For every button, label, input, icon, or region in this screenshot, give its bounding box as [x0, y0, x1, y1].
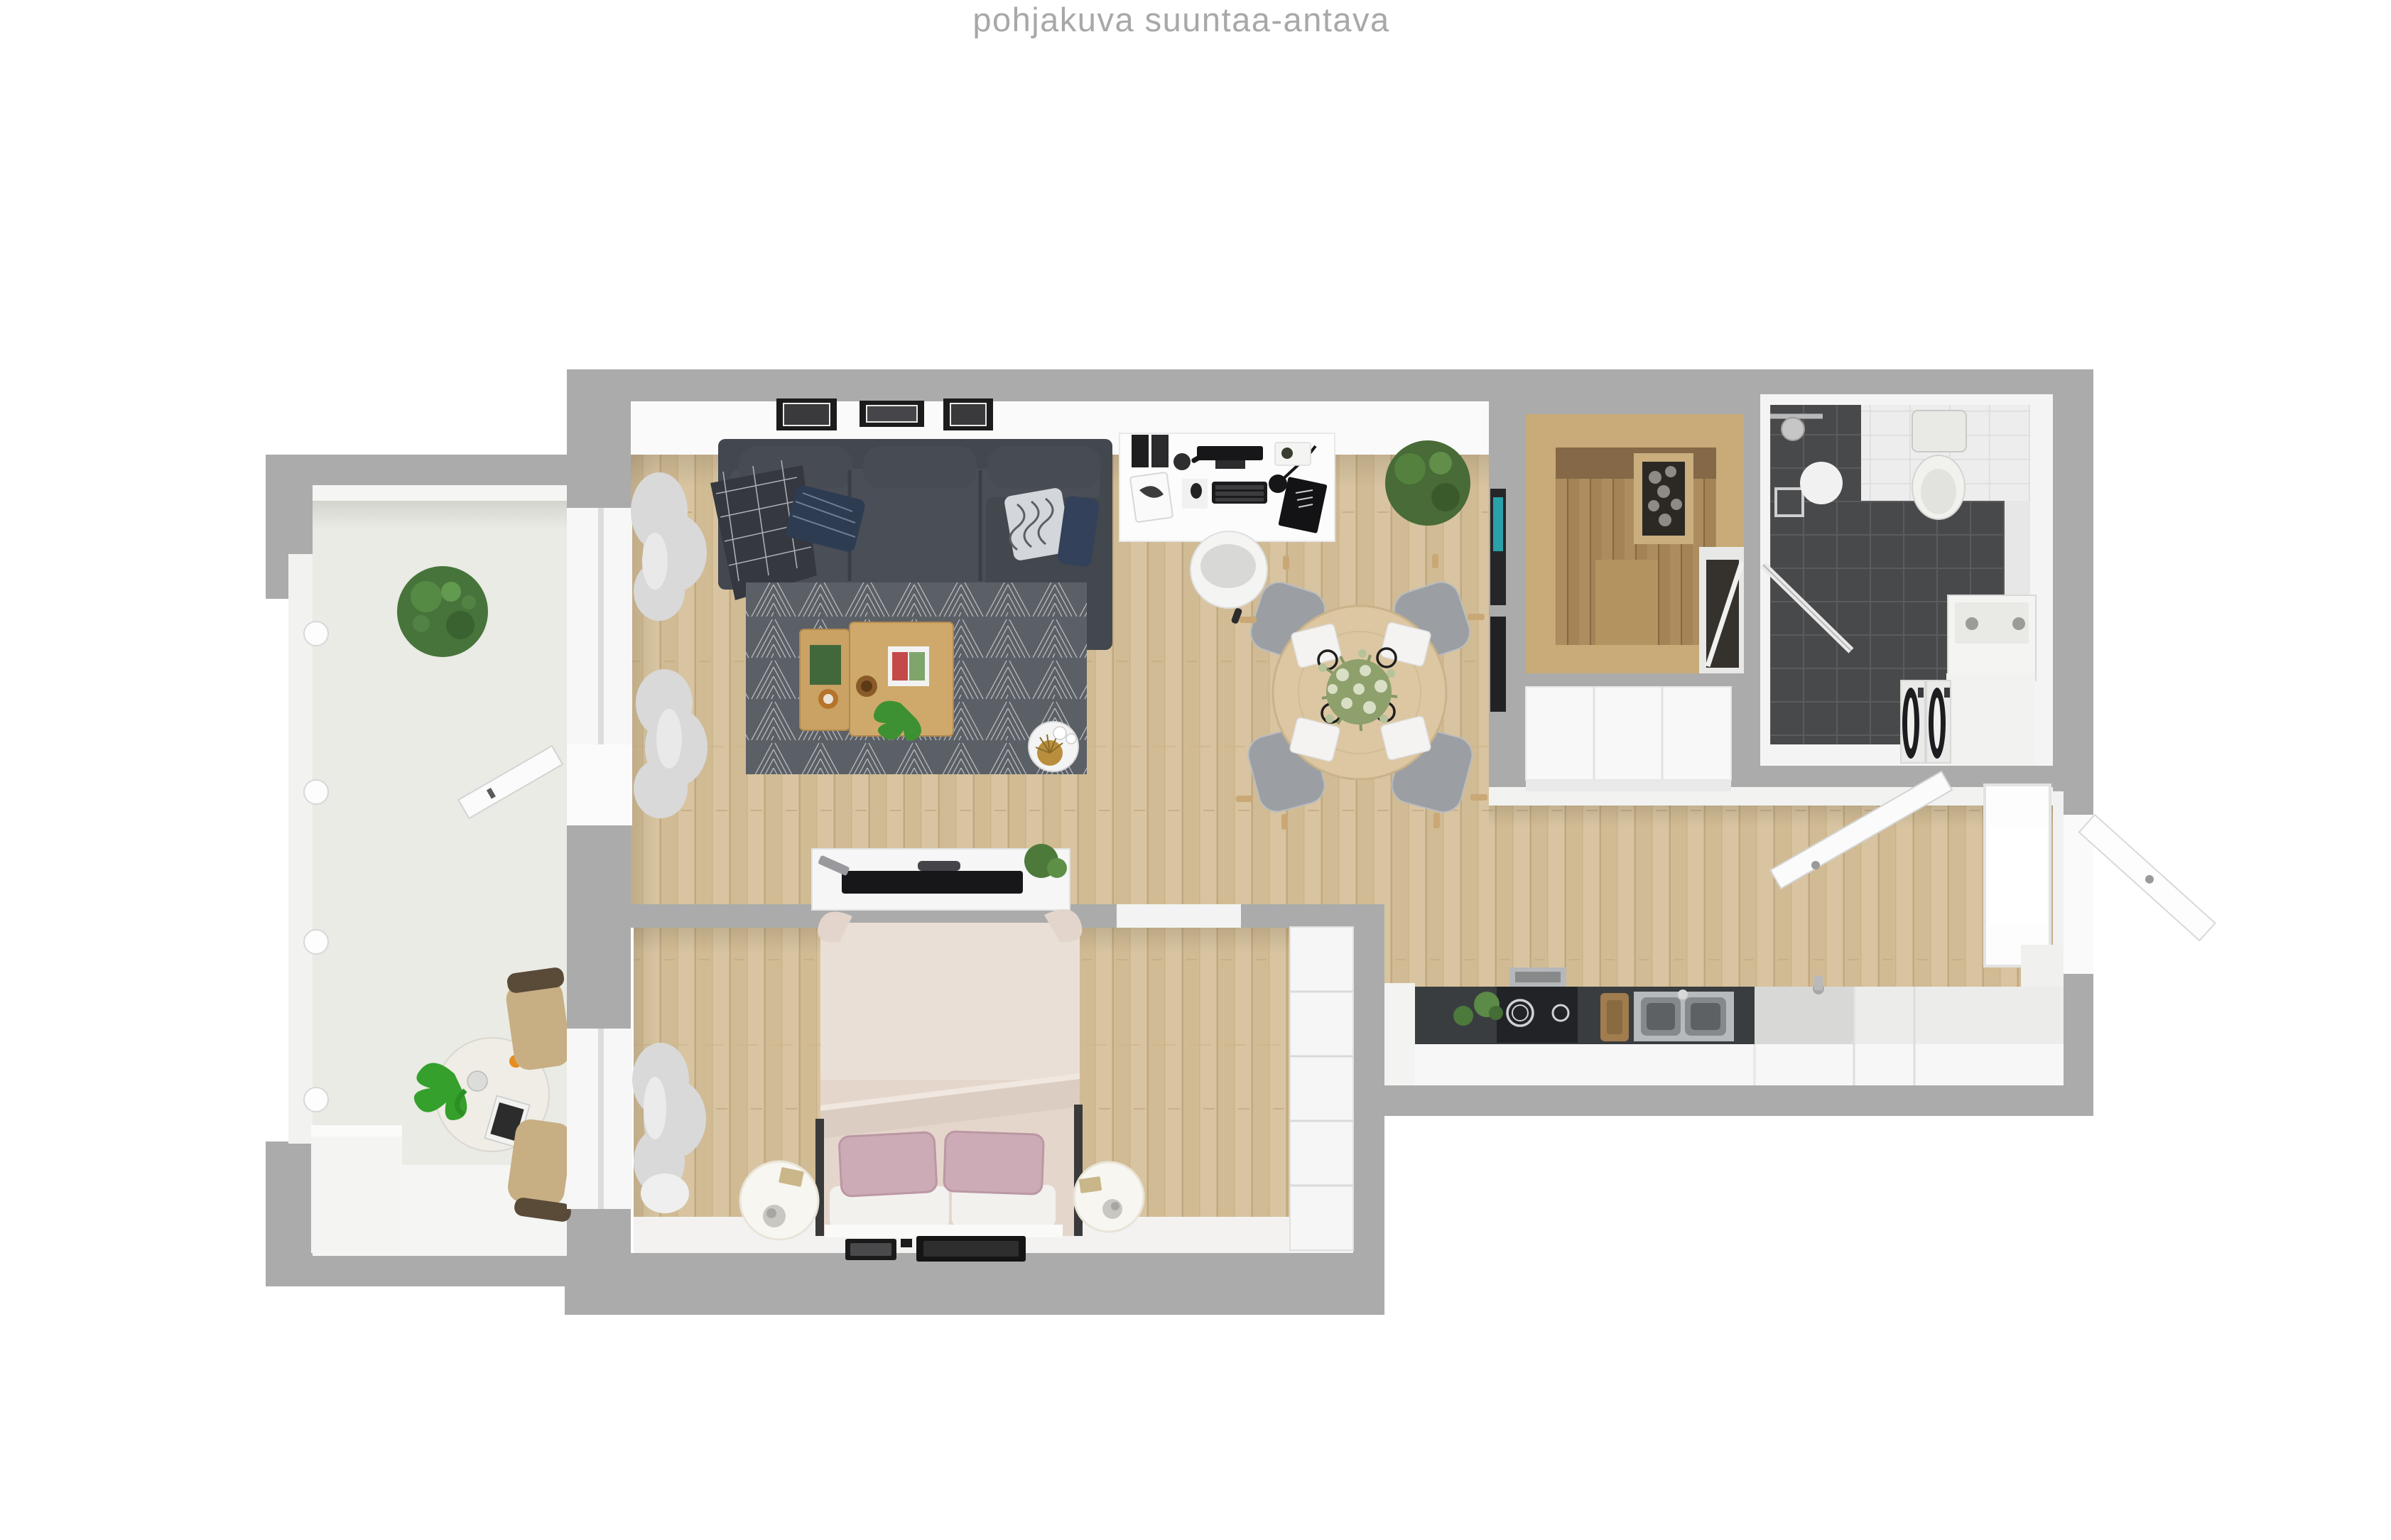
- svg-text:pohjakuva suuntaa-antava: pohjakuva suuntaa-antava: [972, 1, 1389, 38]
